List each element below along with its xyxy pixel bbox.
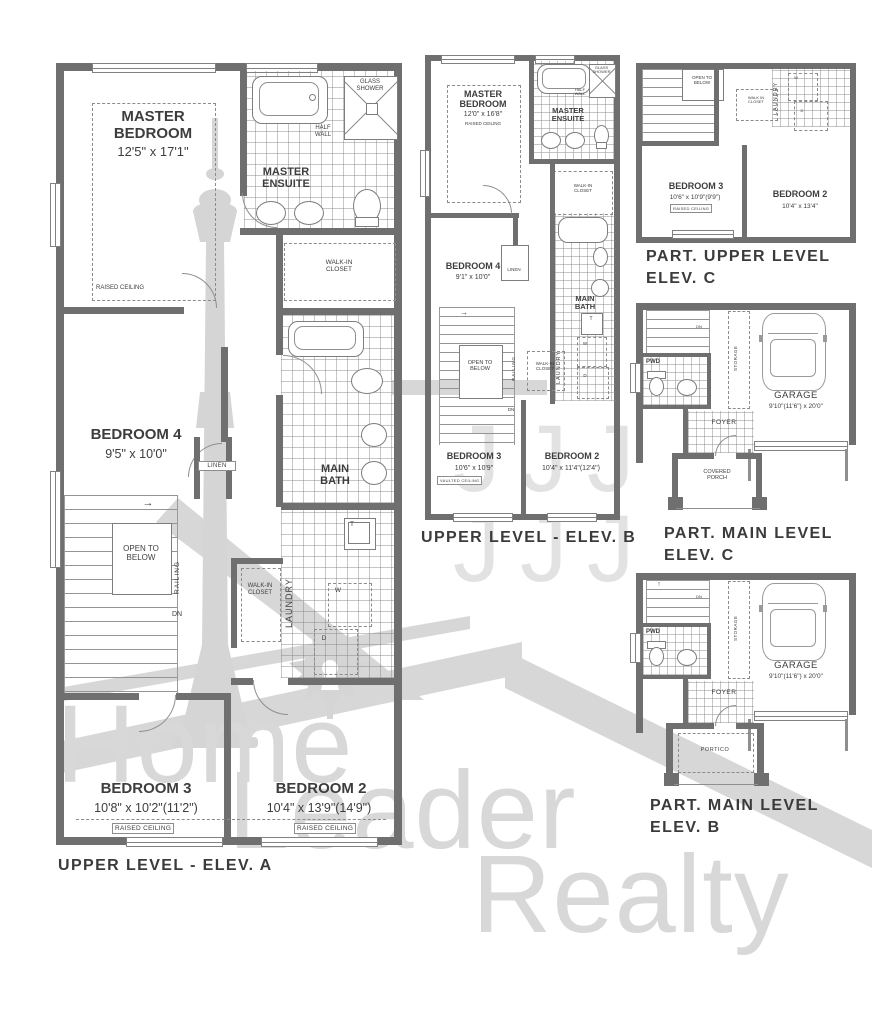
- window: [441, 55, 515, 64]
- wall-segment: [756, 459, 762, 499]
- wall-line: [676, 508, 760, 509]
- stair-direction-arrow-icon: →: [136, 497, 160, 509]
- raised-ceiling-label: RAISED CEILING: [112, 823, 174, 834]
- wall-segment: [666, 729, 673, 775]
- sink-icon: [294, 201, 324, 225]
- garage-label: GARAGE: [758, 391, 834, 402]
- car-line: [768, 603, 818, 604]
- wall-segment: [683, 677, 688, 725]
- car-icon: [762, 313, 824, 389]
- garage-door: [754, 441, 848, 451]
- window: [630, 633, 641, 663]
- window: [547, 513, 597, 522]
- wall-segment: [276, 235, 283, 355]
- master-ensuite-label: MASTER ENSUITE: [254, 166, 318, 191]
- window: [453, 513, 513, 522]
- master-bedroom-dims: 12'0" x 16'8": [449, 111, 517, 119]
- plan-caption: UPPER LEVEL - ELEV. A: [58, 855, 273, 877]
- glass-shower-label: GLASS SHOWER: [588, 66, 615, 75]
- car-cabin: [770, 339, 816, 377]
- wall-segment: [176, 693, 231, 700]
- plan-part-main-level-elev-c: DN PWD STORAGE GARAGE 9'10"(11'6") x 20'…: [636, 303, 856, 521]
- walk-in-closet-label: WALK-IN CLOSET: [306, 259, 372, 274]
- main-bath-label: MAIN BATH: [563, 295, 607, 312]
- storage-label: STORAGE: [733, 331, 742, 386]
- sink-icon: [541, 132, 561, 149]
- dn-label: DN: [692, 595, 706, 599]
- wall-segment: [224, 693, 231, 839]
- plan-upper-level-elev-b: GLASS SHOWER HALF WALL MASTER ENSUITE MA…: [425, 55, 620, 520]
- fixture: [366, 103, 378, 115]
- wall-segment: [707, 353, 711, 409]
- wall-segment: [288, 678, 402, 685]
- wall-segment: [521, 400, 526, 514]
- walk-in-closet-label: WALK-IN CLOSET: [240, 583, 280, 596]
- bedroom2-label: BEDROOM 2: [251, 781, 391, 798]
- wall-segment: [281, 308, 394, 315]
- wall-segment: [221, 347, 228, 442]
- bedroom3-label: BEDROOM 3: [648, 181, 744, 191]
- raised-ceiling-label: RAISED CEILING: [96, 285, 186, 292]
- linen-closet: [501, 245, 529, 281]
- dryer-label: D: [318, 635, 330, 642]
- car-mirror: [759, 335, 763, 342]
- half-wall-label: HALF WALL: [306, 125, 340, 138]
- wall-line: [845, 449, 848, 481]
- wall-line: [674, 784, 758, 785]
- wall-segment: [529, 159, 614, 164]
- window: [50, 471, 61, 568]
- window: [630, 363, 641, 393]
- master-bedroom-dims: 12'5" x 17'1": [94, 145, 212, 160]
- linen-label: LINEN: [198, 461, 236, 471]
- powder-room-label: PWD: [646, 359, 670, 366]
- bedroom4-dims: 9'5" x 10'0": [66, 447, 206, 461]
- wall-segment: [849, 303, 856, 445]
- bathtub-icon: [558, 217, 608, 243]
- wall-segment: [714, 69, 719, 143]
- wall-segment: [849, 573, 856, 715]
- dn-label: DN: [166, 611, 188, 619]
- foyer-label: FOYER: [704, 689, 744, 696]
- wall-segment: [642, 141, 719, 146]
- bedroom3-label: BEDROOM 3: [431, 451, 517, 461]
- vaulted-ceiling-label: VAULTED CEILING: [437, 476, 482, 485]
- car-mirror: [823, 335, 827, 342]
- floorplan-sheet: Home Leader Realty J J J J J J GLASS SHO…: [0, 0, 875, 1030]
- dryer-label: D: [798, 109, 806, 113]
- ceiling-line: [76, 819, 386, 820]
- car-cabin: [770, 609, 816, 647]
- walk-in-closet-label: WALK-IN CLOSET: [565, 183, 601, 193]
- window: [126, 837, 223, 847]
- bedroom2-label: BEDROOM 2: [752, 189, 848, 199]
- wall-segment: [64, 693, 139, 700]
- toilet-icon: [355, 217, 379, 227]
- laundry-tub-label: T: [347, 521, 357, 528]
- wall-segment: [636, 573, 856, 580]
- window: [420, 150, 430, 197]
- raised-ceiling-label: RAISED CEILING: [670, 204, 712, 213]
- covered-porch-label: COVERED PORCH: [678, 469, 756, 481]
- dryer-label: D: [581, 373, 589, 378]
- open-to-below-label: OPEN TO BELOW: [114, 545, 168, 563]
- wall-segment: [231, 678, 253, 685]
- bedroom2-dims: 10'4" x 13'9"(14'9"): [236, 801, 402, 815]
- wall-segment: [276, 395, 283, 507]
- garage-dims: 9'10"(11'6") x 20'0": [748, 673, 844, 680]
- bathtub-icon: [288, 321, 364, 357]
- wall-segment: [707, 623, 711, 679]
- powder-room-label: PWD: [646, 629, 670, 636]
- plan-caption: UPPER LEVEL - ELEV. B: [421, 527, 636, 549]
- shape: [542, 68, 586, 89]
- washer-label: W: [332, 587, 344, 594]
- dryer: [577, 367, 609, 399]
- drain-icon: [309, 94, 316, 101]
- washer-label: W: [581, 341, 589, 346]
- toilet-icon: [351, 368, 383, 394]
- wall-segment: [683, 407, 688, 455]
- toilet-icon: [596, 142, 607, 149]
- wall-segment: [231, 558, 237, 648]
- master-bedroom-label: MASTER BEDROOM: [94, 109, 212, 143]
- watermark-word: Realty: [472, 840, 790, 950]
- wall-segment: [231, 558, 283, 564]
- car-icon: [762, 583, 824, 659]
- window: [50, 183, 61, 247]
- car-mirror: [759, 605, 763, 612]
- sink-icon: [677, 649, 697, 666]
- railing-label: RAILING: [174, 541, 186, 613]
- garage-label: GARAGE: [758, 661, 834, 672]
- car-line: [768, 333, 818, 334]
- plan-caption: PART. UPPER LEVEL ELEV. C: [646, 246, 830, 289]
- bedroom3-label: BEDROOM 3: [81, 781, 211, 798]
- sink-icon: [361, 423, 387, 447]
- storage-label: STORAGE: [733, 601, 742, 656]
- master-ensuite-label: MASTER ENSUITE: [541, 107, 595, 124]
- wall-segment: [643, 675, 711, 679]
- raised-ceiling-label: RAISED CEILING: [449, 121, 517, 126]
- plan-caption: PART. MAIN LEVEL ELEV. B: [650, 795, 819, 838]
- garage-dims: 9'10"(11'6") x 20'0": [748, 403, 844, 410]
- bedroom2-dims: 10'4" x 11'4"(12'4"): [523, 465, 619, 473]
- bedroom2-label: BEDROOM 2: [529, 451, 615, 461]
- walk-in-closet-label: WALK-IN CLOSET: [528, 361, 562, 371]
- wall-segment: [672, 453, 714, 459]
- laundry-label: LAUNDRY: [284, 560, 298, 646]
- laundry-label: LAUNDRY: [773, 73, 783, 123]
- toilet-icon: [649, 647, 664, 666]
- walk-in-closet: [241, 568, 281, 642]
- window: [92, 63, 216, 73]
- plan-part-main-level-elev-b: ↑ DN PWD STORAGE GARAGE 9'10"(11'6") x 2…: [636, 573, 856, 791]
- wall-segment: [757, 729, 764, 775]
- bedroom3-dims: 10'6" x 10'9"(9'9"): [640, 194, 750, 201]
- window: [261, 837, 378, 847]
- bedroom3-dims: 10'6" x 10'9": [431, 465, 517, 473]
- bathtub-icon: [252, 76, 328, 124]
- walk-in-closet-label: WALK IN CLOSET: [738, 96, 774, 105]
- dryer: [794, 101, 828, 131]
- plan-upper-level-elev-a: GLASS SHOWER HALF WALL MASTER ENSUITE MA…: [56, 63, 402, 845]
- stair-direction-arrow-icon: →: [455, 309, 473, 318]
- wall-segment: [240, 71, 247, 196]
- wall-segment: [281, 503, 394, 510]
- plan-part-upper-level-elev-c: OPEN TO BELOW WALK IN CLOSET LAUNDRY W D…: [636, 63, 856, 243]
- railing-label: RAILING: [511, 343, 520, 393]
- stair-direction-arrow-icon: ↑: [652, 581, 666, 589]
- car-mirror: [823, 605, 827, 612]
- shape: [294, 326, 356, 350]
- dn-label: DN: [692, 325, 706, 329]
- staircase: [646, 310, 710, 353]
- laundry-tub-label: T: [585, 317, 597, 323]
- portico-label: PORTICO: [676, 747, 754, 753]
- main-bath-label: MAIN BATH: [304, 463, 366, 488]
- foyer-label: FOYER: [704, 419, 744, 426]
- toilet-icon: [649, 377, 664, 396]
- wall-segment: [643, 405, 711, 409]
- toilet-icon: [593, 247, 608, 267]
- bedroom2-dims: 10'4" x 13'4": [752, 203, 848, 210]
- window: [672, 230, 734, 239]
- washer-label: W: [792, 76, 800, 80]
- wall-segment: [240, 228, 402, 235]
- sink-icon: [565, 132, 585, 149]
- bedroom3-dims: 10'8" x 10'2"(11'2"): [61, 801, 231, 815]
- sink-icon: [677, 379, 697, 396]
- raised-ceiling-label: RAISED CEILING: [294, 823, 356, 834]
- master-bedroom-label: MASTER BEDROOM: [449, 89, 517, 109]
- half-wall-label: HALF WALL: [570, 88, 590, 97]
- open-to-below-label: OPEN TO BELOW: [460, 360, 500, 372]
- wall-line: [845, 719, 848, 751]
- glass-shower-label: GLASS SHOWER: [344, 79, 396, 92]
- linen-label: LINEN: [502, 267, 526, 272]
- wall-segment: [666, 723, 714, 729]
- bedroom4-label: BEDROOM 4: [66, 427, 206, 444]
- plan-caption: PART. MAIN LEVEL ELEV. C: [664, 523, 833, 566]
- garage-door: [754, 711, 848, 721]
- wall-segment: [64, 307, 184, 314]
- sink-icon: [256, 201, 286, 225]
- dn-label: DN: [503, 407, 519, 412]
- wall-segment: [529, 61, 534, 161]
- wall-segment: [636, 303, 856, 310]
